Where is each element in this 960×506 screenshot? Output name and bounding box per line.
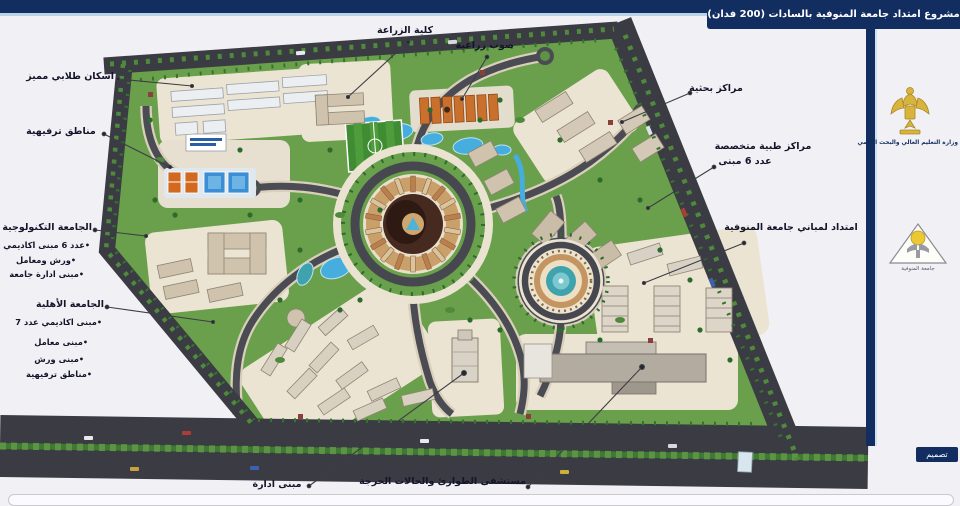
title-bar: مشروع امتداد جامعة المنوفية بالسادات (20… <box>707 0 960 29</box>
label-ahlia-labs: مبنى معامل <box>18 338 88 348</box>
fountain-plaza <box>519 239 603 323</box>
page-title: مشروع امتداد جامعة المنوفية بالسادات (20… <box>707 9 959 20</box>
masterplan-slide: اسكان طلابي مميز مناطق ترفيهية الجامعة ا… <box>0 0 960 506</box>
campus-masterplan-map <box>0 0 960 506</box>
label-student-housing: اسكان طلابي مميز <box>30 72 114 83</box>
bus-shelter <box>737 452 752 473</box>
label-menoufia-extension: امتداد لمباني جامعة المنوفية <box>724 223 858 234</box>
label-recreation-top: مناطق ترفيهية <box>22 127 100 138</box>
medical-center-buildings <box>602 286 732 332</box>
sidebar-divider <box>866 16 875 446</box>
egypt-eagle-emblem-icon <box>886 84 934 138</box>
label-agriculture-faculty: كلية الزراعة <box>376 26 434 37</box>
university-logo-caption: جامعة المنوفية <box>888 266 948 272</box>
label-research-centers: مراكز بحثية <box>688 84 744 95</box>
label-tech-university: الجامعة التكنولوجية <box>12 223 92 234</box>
bottom-frame-bar <box>8 494 954 506</box>
label-tech-admin: مبنى ادارة جامعة <box>8 270 84 280</box>
label-admin-building: مبنى ادارة <box>250 480 304 491</box>
label-ahlia-academic: مبنى اكاديمي عدد 7 <box>4 318 102 328</box>
project-signboard <box>186 134 226 151</box>
design-credit-text: تصميم <box>926 450 948 459</box>
label-greenhouses: صوب زراعية <box>456 41 514 52</box>
menoufia-university-logo-icon <box>888 222 948 266</box>
label-ahlia-workshops: مبنى ورش <box>20 355 84 365</box>
ministry-caption: وزارة التعليم العالي والبحث العلمي <box>870 140 958 146</box>
pools-and-courts <box>164 168 256 198</box>
label-ahlia-recreation: مناطق ترفيهية <box>12 370 92 380</box>
label-emergency-hospital: مستشفى الطوارئ والحالات الحرجة <box>386 477 526 488</box>
sidebar-divider-light <box>875 16 877 446</box>
central-plaza <box>333 144 493 304</box>
label-tech-academic: عدد 6 مبنى اكاديمي <box>6 241 90 251</box>
label-tech-workshops: ورش ومعامل <box>12 256 76 266</box>
label-ahlia-university: الجامعة الأهلية <box>36 300 104 311</box>
design-credit-badge: تصميم <box>916 447 958 462</box>
label-medical-centers-count: عدد 6 مبنى <box>718 157 772 168</box>
label-medical-centers: مراكز طبية متخصصة <box>704 142 822 153</box>
